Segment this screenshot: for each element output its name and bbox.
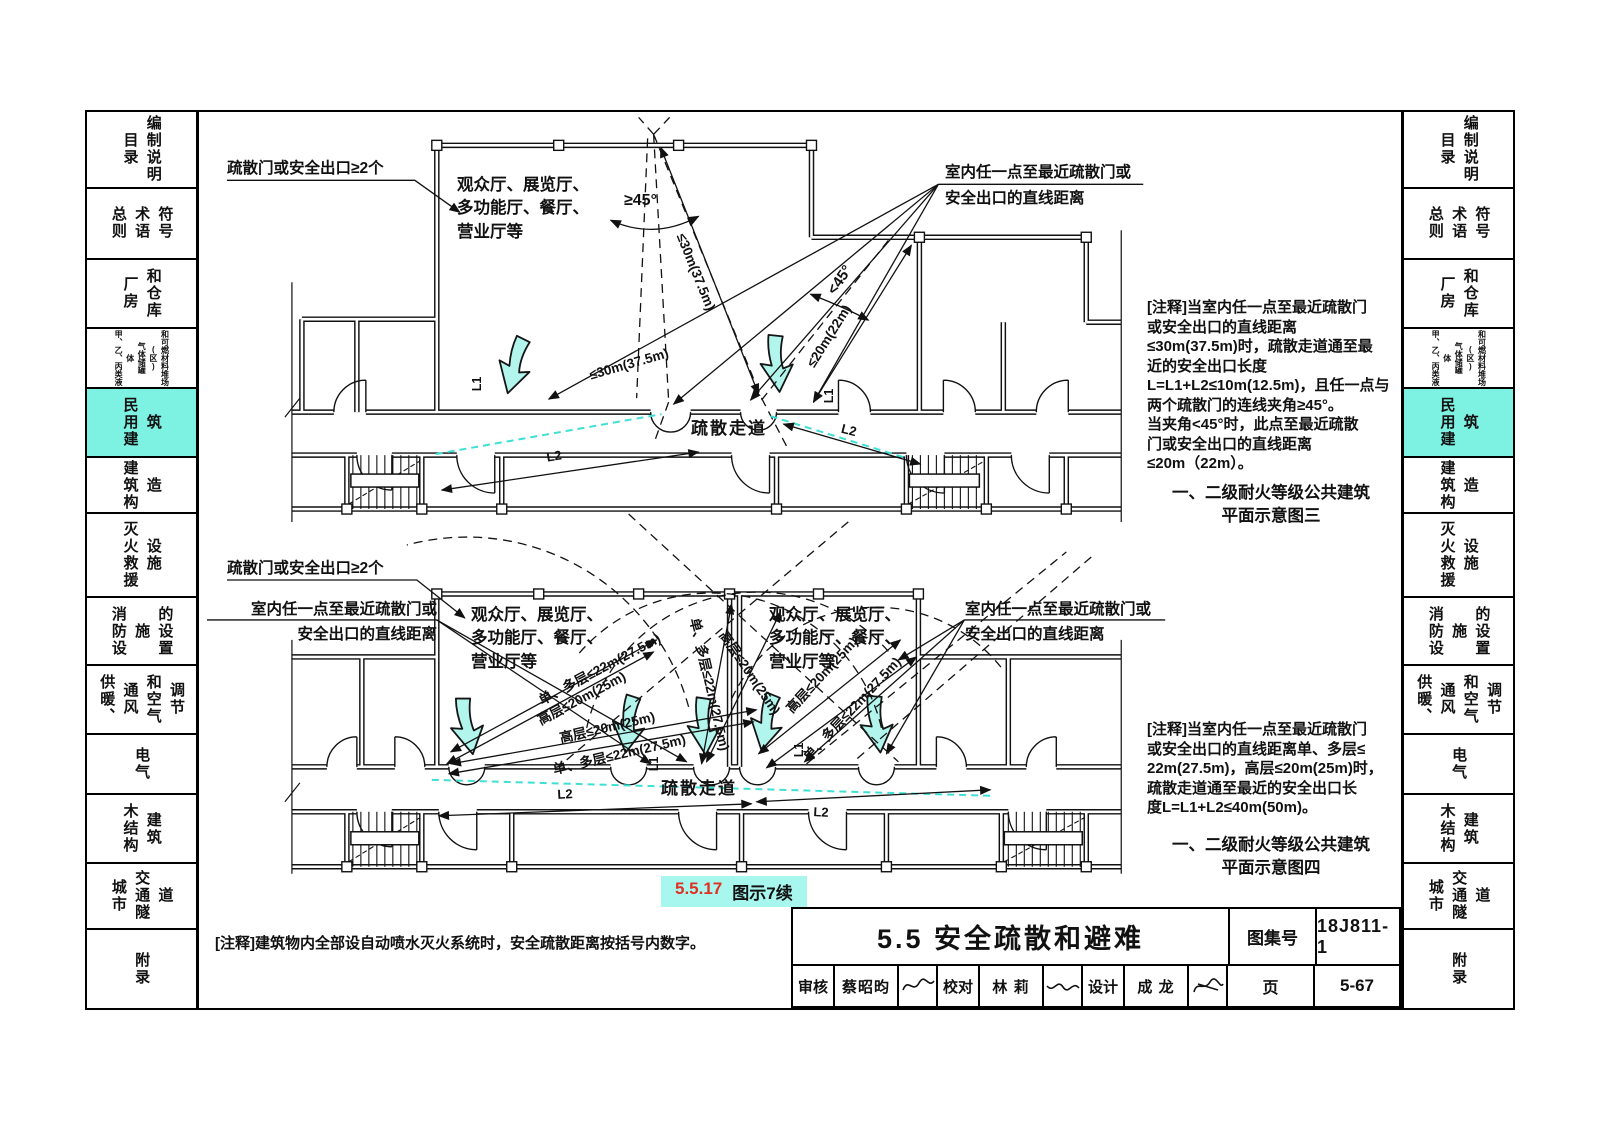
top-distance-label-line1: 室内任一点至最近疏散门或 [945,160,1131,182]
sidebar-tab-label: 目录 编制说明 [118,115,165,183]
sidebar-tab-label: 民用建筑 [1435,389,1482,456]
sidebar-tab[interactable]: 甲、乙、丙类液体 气体储罐(区) 和可燃材料堆场 [1404,329,1513,389]
column-markers [342,140,1091,871]
figure-caption-number: 5.5.17 [675,879,722,904]
designer-label: 设计 [1083,966,1125,1006]
sidebar-tab-label: 附录 [1447,952,1470,986]
sidebar-tab-label: 电气 [130,747,153,781]
sidebar-tabs-left: 目录 编制说明 总则 术语 符号 厂房 和仓库 甲、乙、丙类液体 气体储罐(区)… [87,112,196,1008]
top-l1-right: L1 [822,389,836,404]
footer-note: [注释]建筑物内全部设自动喷水灭火系统时，安全疏散距离按括号内数字。 [215,932,705,953]
caption-diagram4: 一、二级耐火等级公共建筑 平面示意图四 [1143,834,1399,880]
sidebar-tab-label: 民用建筑 [118,389,165,456]
sidebar-tab[interactable]: 总则 术语 符号 [1404,189,1513,260]
checker-signature-icon [1044,966,1083,1006]
sidebar-tab[interactable]: 目录 编制说明 [87,112,196,189]
top-l2-left: L2 [545,447,562,464]
sidebar-tab[interactable]: 城市 交通隧道 [87,864,196,929]
sidebar-tab-label: 甲、乙、丙类液体 气体储罐(区) 和可燃材料堆场 [1430,329,1488,387]
sidebar-tab[interactable]: 附录 [1404,930,1513,1008]
sidebar-tab-label: 城市 交通隧道 [1424,864,1494,927]
sidebar-tab[interactable]: 建筑构造 [87,458,196,514]
sidebar-tab[interactable]: 民用建筑 [1404,389,1513,458]
sheet-title: 5.5 安全疏散和避难 [793,909,1230,964]
sidebar-tab[interactable]: 城市 交通隧道 [1404,864,1513,929]
sidebar-tab-label: 城市 交通隧道 [107,864,177,927]
sidebar-tab-label: 消防设施 的设置 [1424,598,1494,663]
sidebar-tab-label: 总则 术语 符号 [107,206,177,240]
sidebar-tab-label: 厂房 和仓库 [1435,268,1482,319]
sidebar-tab-label: 供暖、通风 和空气调节 [95,666,188,733]
atlas-number-label: 图集号 [1230,909,1317,964]
sidebar-tab[interactable]: 供暖、通风 和空气调节 [1404,666,1513,735]
bottom-corridor-label: 疏散走道 [661,774,737,799]
sidebar-tab[interactable]: 消防设施 的设置 [1404,598,1513,665]
sidebar-tab-label: 灭火救援 设施 [118,521,165,589]
sheet-frame: 目录 编制说明 总则 术语 符号 厂房 和仓库 甲、乙、丙类液体 气体储罐(区)… [85,110,1515,1010]
main-content: 疏散门或安全出口≥2个 观众厅、展览厅、 多功能厅、餐厅、 营业厅等 ≥45° … [199,112,1401,1008]
sidebar-tab-label: 附录 [130,952,153,986]
title-block: 5.5 安全疏散和避难 图集号 18J811-1 审核 蔡昭昀 校对 林 莉 设… [791,907,1401,1008]
note-diagram3: [注释]当室内任一点至最近疏散门 或安全出口的直线距离 ≤30m(37.5m)时… [1147,298,1401,474]
bottom-distance-right-line1: 室内任一点至最近疏散门或 [965,597,1151,619]
sidebar-tab-label: 消防设施 的设置 [107,598,177,663]
sidebar-tab-label: 目录 编制说明 [1435,115,1482,183]
sidebar-tab[interactable]: 木结构 建筑 [87,795,196,864]
sidebar-tab-label: 灭火救援 设施 [1435,521,1482,589]
top-hall-label: 观众厅、展览厅、 多功能厅、餐厅、 营业厅等 [457,174,589,244]
bottom-l1-right: L1 [792,743,806,758]
figure-caption: 5.5.17 图示7续 [661,876,807,907]
reviewer-name: 蔡昭昀 [835,966,899,1006]
sidebar-tab[interactable]: 建筑构造 [1404,458,1513,514]
caption-diagram3: 一、二级耐火等级公共建筑 平面示意图三 [1143,482,1399,528]
sidebar-tab-label: 木结构 建筑 [1435,803,1482,854]
top-angle-ge-label: ≥45° [624,192,657,210]
sidebar-tab[interactable]: 民用建筑 [87,389,196,458]
sidebar-tab[interactable]: 电气 [1404,735,1513,795]
checker-label: 校对 [938,966,980,1006]
bottom-distance-left-line1: 室内任一点至最近疏散门或 [207,597,437,619]
sidebar-tab-label: 厂房 和仓库 [118,268,165,319]
bottom-l2-left: L2 [557,786,573,802]
bottom-l2-right: L2 [813,804,829,820]
sidebar-tab[interactable]: 厂房 和仓库 [87,260,196,329]
sidebar-tab-label: 建筑构造 [1435,458,1482,512]
bottom-exit-count-label: 疏散门或安全出口≥2个 [227,556,384,578]
sidebar-tab[interactable]: 目录 编制说明 [1404,112,1513,189]
sidebar-tab[interactable]: 甲、乙、丙类液体 气体储罐(区) 和可燃材料堆场 [87,329,196,389]
sidebar-tab-label: 建筑构造 [118,458,165,512]
caption-diagram3-line2: 平面示意图三 [1143,505,1399,528]
sidebar-right: 目录 编制说明 总则 术语 符号 厂房 和仓库 甲、乙、丙类液体 气体储罐(区)… [1401,112,1513,1008]
sidebar-tab-label: 木结构 建筑 [118,803,165,854]
caption-diagram3-line1: 一、二级耐火等级公共建筑 [1143,482,1399,505]
sidebar-tab-label: 供暖、通风 和空气调节 [1412,666,1505,733]
top-l1-left: L1 [470,377,484,392]
top-exit-count-label: 疏散门或安全出口≥2个 [227,156,384,178]
sidebar-tab-label: 电气 [1447,747,1470,781]
top-distance-label-line2: 安全出口的直线距离 [945,186,1085,208]
bottom-l1-left: L1 [647,757,661,772]
sidebar-tab-label: 甲、乙、丙类液体 气体储罐(区) 和可燃材料堆场 [113,329,171,387]
bottom-distance-right-line2: 安全出口的直线距离 [965,622,1105,644]
sidebar-tabs-right: 目录 编制说明 总则 术语 符号 厂房 和仓库 甲、乙、丙类液体 气体储罐(区)… [1404,112,1513,1008]
sidebar-tab-label: 总则 术语 符号 [1424,206,1494,240]
sidebar-tab[interactable]: 总则 术语 符号 [87,189,196,260]
sidebar-tab[interactable]: 电气 [87,735,196,795]
atlas-number-value: 18J811-1 [1317,909,1399,964]
caption-diagram4-line1: 一、二级耐火等级公共建筑 [1143,834,1399,857]
page-label: 页 [1228,966,1315,1006]
sidebar-tab[interactable]: 木结构 建筑 [1404,795,1513,864]
figure-caption-text: 图示7续 [732,879,792,904]
sidebar-tab[interactable]: 灭火救援 设施 [1404,514,1513,598]
bottom-distance-left-line2: 安全出口的直线距离 [207,622,437,644]
checker-name: 林 莉 [980,966,1044,1006]
designer-name: 成 龙 [1125,966,1189,1006]
sidebar-tab[interactable]: 供暖、通风 和空气调节 [87,666,196,735]
designer-signature-icon [1189,966,1228,1006]
sidebar-tab[interactable]: 灭火救援 设施 [87,514,196,598]
sidebar-tab[interactable]: 附录 [87,930,196,1008]
reviewer-label: 审核 [793,966,835,1006]
page-number: 5-67 [1315,966,1399,1006]
reviewer-signature-icon [899,966,938,1006]
sidebar-tab[interactable]: 消防设施 的设置 [87,598,196,665]
sidebar-tab[interactable]: 厂房 和仓库 [1404,260,1513,329]
sidebar-left: 目录 编制说明 总则 术语 符号 厂房 和仓库 甲、乙、丙类液体 气体储罐(区)… [87,112,199,1008]
atlas-page: 目录 编制说明 总则 术语 符号 厂房 和仓库 甲、乙、丙类液体 气体储罐(区)… [0,0,1600,1131]
top-corridor-label: 疏散走道 [691,414,767,439]
note-diagram4: [注释]当室内任一点至最近疏散门 或安全出口的直线距离单、多层≤ 22m(27.… [1147,720,1401,818]
caption-diagram4-line2: 平面示意图四 [1143,857,1399,880]
